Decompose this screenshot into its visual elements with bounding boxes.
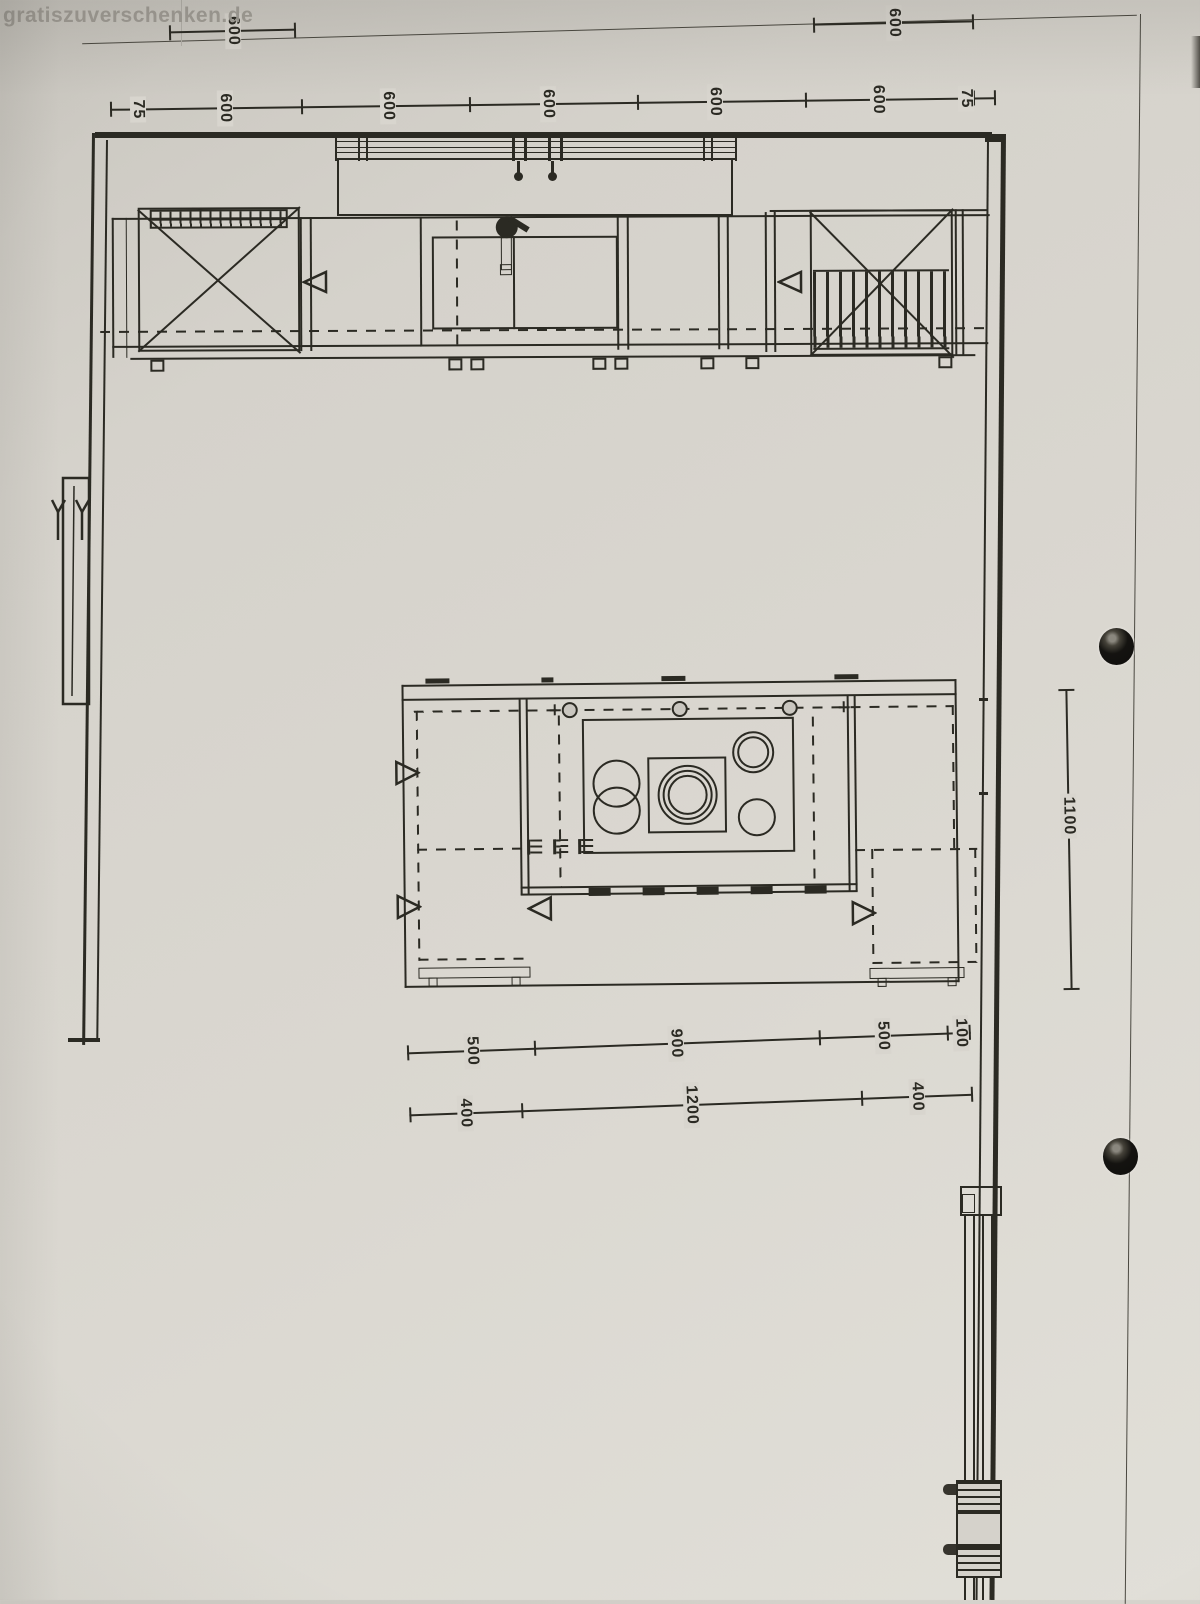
cabinet-foot [614,358,628,370]
window-sill-niche [337,158,733,216]
faucet-base [500,264,512,275]
plan-line [627,216,630,350]
hinge-mark-icon [527,839,542,854]
plan-line [416,711,421,961]
burner-icon [593,786,642,835]
dim-label: 400 [457,1095,474,1131]
handle-mark [661,676,685,681]
plan-line [718,215,721,349]
cabinet-foot [448,358,462,370]
sink [432,236,618,330]
plan-line [294,23,296,38]
plan-line [779,272,801,292]
punch-hole [1099,628,1134,665]
dim-label: 1100 [1060,794,1077,839]
frame-right-border [1125,14,1141,1604]
window-sash [956,1480,1002,1512]
plan-line [76,500,82,512]
handle-mark [805,885,827,893]
plan-line [554,704,556,715]
plan-line [946,1026,949,1041]
plan-line [558,715,562,887]
bench-foot [878,978,887,987]
plan-line [335,141,737,142]
plan-line [974,848,977,963]
vent-grille-icon [150,209,288,229]
plan-line [396,762,418,784]
plan-line [418,958,531,961]
handle-mark [589,888,611,896]
burner-icon [738,798,776,836]
plan-line [335,152,737,153]
plan-line [765,212,768,352]
handle-mark [643,887,665,895]
burner-icon [737,736,769,768]
plan-line [63,478,89,704]
plan-line [954,679,959,982]
hinge-mark-icon [553,839,568,854]
plan-line [847,695,851,891]
window-sash [956,1546,1002,1578]
plan-line [519,699,523,895]
photographed-floorplan-page: { "watermark": { "text": "gratiszuversch… [0,0,1200,1600]
dim-label: 600 [217,90,233,126]
sink-divider [513,236,515,329]
plan-line [409,1107,412,1122]
handle-mark [697,887,719,895]
plan-line [112,218,115,358]
plan-line [398,896,420,918]
plan-line [872,961,976,964]
dim-chains-bottom: 500 900 500 100 400 1200 400 [398,1005,986,1138]
plan-line [812,717,816,885]
left-wall-end-cap [68,1038,100,1042]
dim-label: 75 [958,86,974,112]
plan-line [526,699,530,895]
plan-line [774,212,777,352]
plan-line [962,1194,975,1213]
window-handle-icon [943,1544,956,1555]
plan-line [534,1041,537,1056]
dim-label: 100 [952,1015,969,1051]
bench-foot [429,978,438,987]
handle-mark [834,674,858,679]
dim-label: 900 [667,1025,684,1061]
plan-line [1064,988,1080,990]
plan-line [843,701,845,712]
plan-line [853,902,875,924]
dim-label: 75 [130,96,146,122]
door-swing-triangle-icon [777,269,803,295]
dim-label: 600 [540,86,556,122]
cabinet-foot [150,360,164,372]
dim-label: 600 [707,84,723,120]
plan-line [813,18,815,33]
door-swing-triangle-icon [393,759,420,787]
door-swing-triangle-icon [302,269,328,295]
bench-foot [512,977,521,986]
bench-foot [948,977,957,986]
window-handle-icon [943,1484,956,1495]
dim-label: 500 [463,1033,480,1069]
plan-line [979,698,988,701]
left-wall-window [50,468,100,712]
plan-line [971,1087,974,1102]
plan-line [72,486,74,696]
cabinet-foot [938,356,952,368]
plan-line [401,685,406,988]
plan-line [962,209,964,355]
wall-corner [985,134,1005,142]
plan-line [301,99,303,114]
plan-line [402,693,957,700]
plan-line [979,792,988,795]
plan-line [405,980,960,988]
plan-line [819,1030,822,1045]
door-swing-triangle-icon [395,893,422,921]
dim-top-row1-right: 600 [810,6,979,40]
plan-line [417,848,521,851]
plan-line [955,209,958,355]
dim-label: 600 [380,88,396,124]
plan-line [1058,689,1074,691]
plan-line [805,93,807,108]
dim-label: 400 [908,1079,925,1115]
cabinet-foot [470,358,484,370]
door-swing-triangle-icon [850,899,877,927]
plan-line [861,1091,864,1106]
control-knob-icon [672,701,688,717]
plan-line [1065,690,1072,990]
plan-line [529,897,551,919]
hinge-mark-icon [578,839,593,854]
plan-line [469,97,471,112]
photo-edge-shadow [1191,36,1200,88]
plan-line [735,135,737,161]
hinge-icon [52,500,89,540]
dim-label: 600 [870,82,886,118]
handle-mark [425,678,449,683]
control-knob-icon [562,702,578,718]
burner-icon [667,775,707,815]
handle-mark [751,886,773,894]
plan-line [335,147,737,148]
plan-line [110,102,112,117]
plan-line [521,1103,524,1118]
plan-line [52,500,58,512]
handle-mark [541,677,553,682]
plan-line [727,215,730,349]
punch-hole [1103,1138,1138,1175]
plan-line [855,848,977,851]
cabinet-foot [700,357,714,369]
cabinet-foot [592,358,606,370]
control-knob-icon [782,700,798,716]
dim-label: 1200 [682,1082,700,1128]
window-sash [956,1512,1002,1546]
slatted-front-icon [813,269,949,350]
plan-line [420,217,422,347]
watermark-text: gratiszuverschenken.de [3,4,253,28]
top-wall [95,132,992,138]
plan-line [304,272,326,292]
dim-label: 500 [874,1018,891,1054]
dim-chain-top: 75 600 600 600 600 600 75 [108,82,998,126]
plan-line [854,695,858,891]
plan-line [637,95,639,110]
door-swing-triangle-icon [527,894,554,922]
plan-line [972,14,974,29]
plan-line [126,218,128,358]
plan-line [407,1045,410,1060]
cabinet-foot [745,357,759,369]
dim-right-1100: 1100 [1049,686,1088,995]
plan-line [994,90,996,105]
dim-label: 600 [886,5,903,41]
